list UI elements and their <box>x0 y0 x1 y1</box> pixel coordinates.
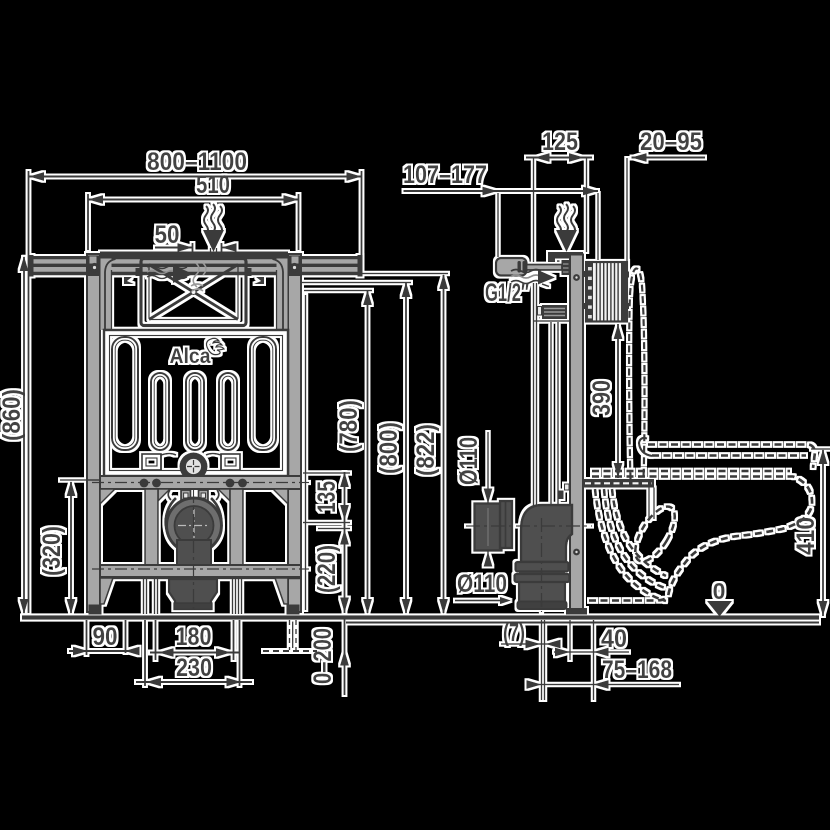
svg-text:180: 180 <box>176 623 212 651</box>
svg-text:Ø110: Ø110 <box>455 437 483 485</box>
svg-text:(822): (822) <box>412 424 440 476</box>
svg-text:510: 510 <box>196 171 230 199</box>
svg-text:(860): (860) <box>0 389 26 441</box>
svg-text:(220): (220) <box>313 545 341 593</box>
svg-text:0: 0 <box>713 578 726 604</box>
svg-text:107–177: 107–177 <box>403 161 487 189</box>
svg-text:(800): (800) <box>375 422 403 474</box>
svg-text:0–200: 0–200 <box>309 628 337 684</box>
svg-text:50: 50 <box>155 221 180 249</box>
svg-text:Alca: Alca <box>170 345 211 368</box>
svg-text:G1/2″: G1/2″ <box>485 279 529 307</box>
svg-text:20–95: 20–95 <box>640 128 702 156</box>
svg-text:390: 390 <box>588 380 616 416</box>
svg-text:75–168: 75–168 <box>602 656 672 684</box>
svg-text:410: 410 <box>792 517 820 555</box>
svg-text:(320): (320) <box>38 526 66 576</box>
svg-text:135: 135 <box>313 481 341 513</box>
svg-text:Ø110: Ø110 <box>457 570 507 598</box>
svg-text:(780): (780) <box>335 400 363 452</box>
svg-text:(7): (7) <box>503 619 525 647</box>
svg-text:90: 90 <box>93 623 118 651</box>
svg-text:230: 230 <box>176 654 212 682</box>
svg-text:125: 125 <box>542 128 578 156</box>
